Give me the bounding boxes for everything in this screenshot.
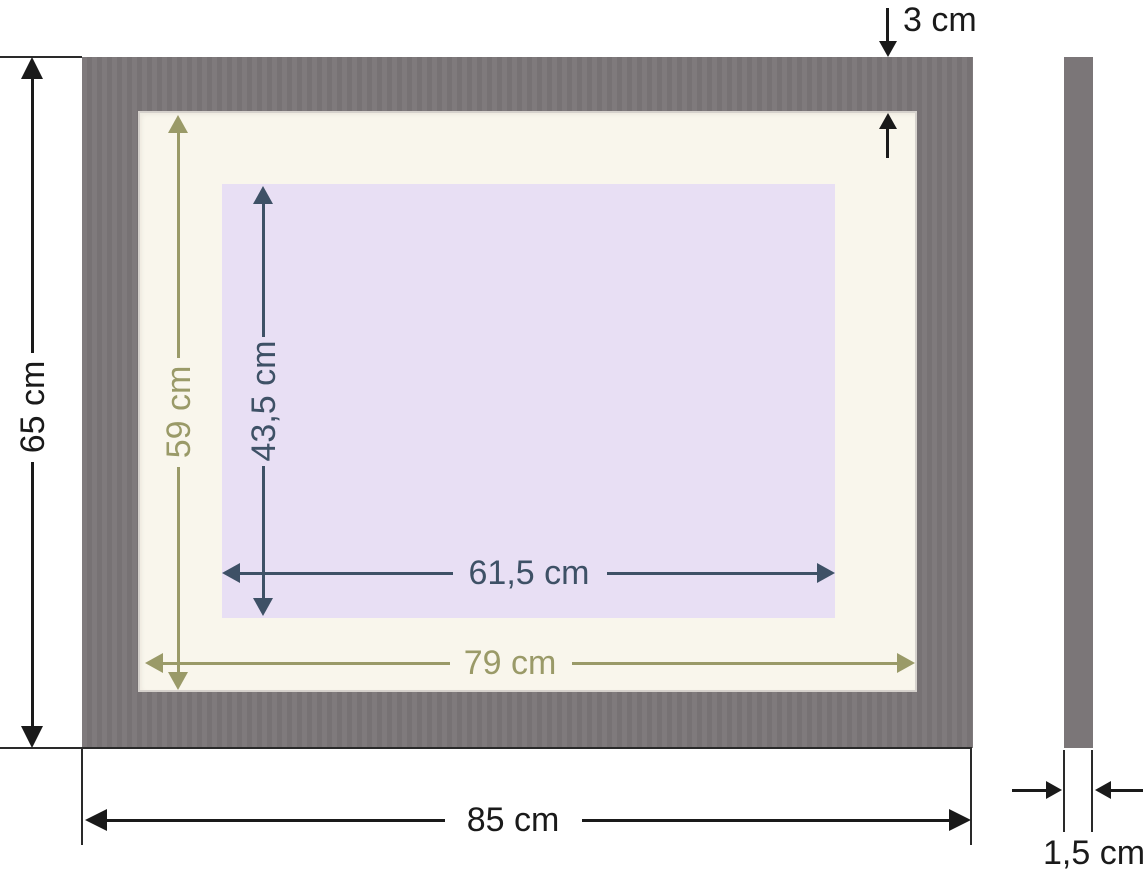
opening-height-dimension-line (262, 466, 265, 598)
thickness-label: 1,5 cm (1043, 836, 1143, 870)
outer-width-label: 85 cm (467, 803, 560, 837)
outer-height-dimension-line (31, 79, 34, 353)
picture-opening (222, 184, 835, 618)
frame-border-dimension-line (886, 8, 889, 42)
thickness-dimension-line (1111, 789, 1143, 792)
frame-border-dimension-line (886, 129, 889, 158)
opening-height-label: 43,5 cm (247, 341, 281, 462)
arrow-left-icon (222, 563, 240, 583)
arrow-right-icon (1046, 781, 1062, 799)
extension-line-bottom (0, 747, 972, 749)
mat-height-label: 59 cm (162, 366, 196, 459)
frame-border-label: 3 cm (903, 3, 977, 37)
extension-line-bottom-left (81, 747, 83, 845)
extension-line-profile-left (1063, 750, 1065, 832)
outer-width-dimension-line (582, 819, 949, 822)
thickness-dimension-line (1012, 789, 1048, 792)
outer-height-dimension-line (31, 462, 34, 726)
mat-width-dimension-line (572, 662, 897, 665)
mat-height-dimension-line (177, 133, 180, 358)
opening-height-dimension-line (262, 204, 265, 337)
extension-line-profile-right (1091, 750, 1093, 832)
mat-width-dimension-line (163, 662, 450, 665)
arrow-left-icon (85, 809, 107, 831)
arrow-right-icon (949, 809, 971, 831)
frame-dimensions-diagram: 65 cm 59 cm 43,5 cm 61,5 cm 79 cm 85 cm … (0, 0, 1143, 873)
frame-side-profile (1064, 57, 1093, 748)
arrow-down-icon (168, 672, 188, 690)
arrow-up-icon (879, 113, 897, 129)
mat-height-dimension-line (177, 467, 180, 672)
arrow-left-icon (145, 653, 163, 673)
opening-width-dimension-line (607, 572, 817, 575)
outer-height-label: 65 cm (16, 361, 50, 454)
arrow-right-icon (817, 563, 835, 583)
opening-width-label: 61,5 cm (469, 556, 590, 590)
arrow-down-icon (21, 726, 43, 748)
arrow-right-icon (897, 653, 915, 673)
outer-width-dimension-line (107, 819, 445, 822)
arrow-up-icon (21, 57, 43, 79)
arrow-left-icon (1095, 781, 1111, 799)
arrow-up-icon (253, 186, 273, 204)
arrow-down-icon (879, 41, 897, 57)
arrow-down-icon (253, 598, 273, 616)
arrow-up-icon (168, 115, 188, 133)
mat-width-label: 79 cm (464, 646, 557, 680)
opening-width-dimension-line (240, 572, 453, 575)
